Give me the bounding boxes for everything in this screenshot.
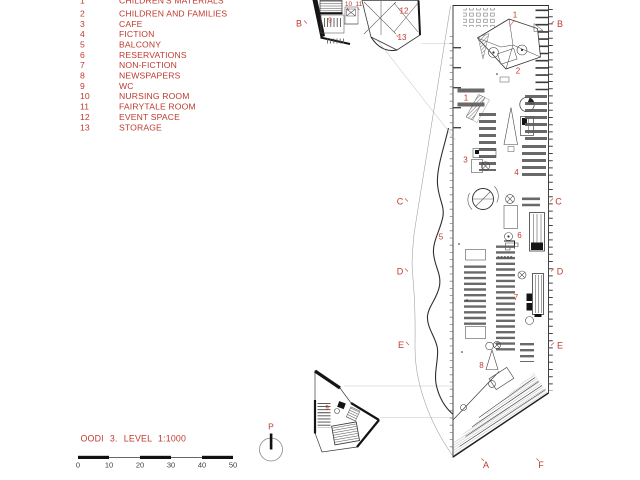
scale-tick-label: 40 (198, 461, 206, 470)
legend-label: CAFE (119, 19, 143, 29)
construction-line (378, 41, 456, 141)
title-block: OODI 3. LEVEL 1:1000 (81, 434, 187, 444)
legend-num: 9 (80, 81, 85, 91)
room-label-9b: 9 (325, 405, 329, 412)
section-marker-c-left: C (397, 197, 404, 207)
section-tick (405, 269, 408, 272)
legend-num: 2 (80, 8, 85, 18)
room-label-4: 4 (514, 168, 519, 177)
terrace-step (466, 386, 543, 437)
scale-bar-segment (140, 456, 171, 459)
legend-num: 7 (80, 60, 85, 70)
drawing-title: OODI 3. LEVEL 1:1000 (81, 434, 187, 444)
column-dot (461, 351, 463, 353)
scale-tick-label: 30 (167, 461, 175, 470)
elevator (527, 294, 533, 302)
section-marker-d-right: D (557, 267, 564, 277)
annex-plan-top (313, 0, 453, 50)
shaft (531, 243, 543, 251)
balcony-edge (412, 6, 452, 456)
round-table (489, 381, 496, 388)
annex-wall (357, 420, 379, 447)
floor-plan-sheet: 1 CHILDREN'S MATERIALS 2 CHILDREN AND FA… (0, 0, 640, 480)
section-marker-f-bottom: F (538, 460, 544, 470)
annex-plan-bottom (315, 371, 452, 452)
legend-num: 1 (80, 0, 85, 6)
legend-num: 8 (80, 71, 85, 81)
room-label-5: 5 (439, 233, 444, 242)
legend-label: FICTION (119, 29, 154, 39)
room-label-9: 9 (328, 18, 332, 25)
room-label-2: 2 (516, 67, 521, 76)
section-marker-e-right: E (557, 341, 563, 351)
scale-tick-label: 0 (76, 461, 80, 470)
scale-bar-segment (202, 456, 233, 459)
cone-skylight (504, 108, 518, 145)
reading-table (466, 327, 486, 339)
section-tick (550, 199, 553, 202)
escalator (332, 422, 360, 445)
section-marker-a-bottom: A (483, 460, 489, 470)
room-label-13: 13 (398, 33, 407, 42)
round-table-cross (507, 196, 513, 202)
table-grid (463, 8, 496, 27)
cone-skylight (486, 350, 498, 370)
furniture (500, 77, 509, 82)
legend-label: NURSING ROOM (119, 91, 190, 101)
annex-wall (315, 371, 340, 388)
legend-label: NON-FICTION (119, 60, 177, 70)
stair (346, 407, 360, 421)
legend-label: CHILDREN'S MATERIALS (119, 0, 224, 6)
section-marker-b-right: B (557, 19, 563, 29)
seating-area (504, 206, 518, 229)
elevator (347, 9, 356, 16)
column-dot (496, 73, 498, 75)
shaft (475, 150, 479, 154)
legend-label: NEWSPAPERS (119, 71, 181, 81)
legend-num: 13 (80, 122, 90, 132)
shaft (337, 401, 346, 409)
roof-bracing (364, 1, 418, 35)
room-label-7: 7 (514, 293, 519, 302)
section-tick (405, 199, 408, 202)
legend-label: BALCONY (119, 40, 161, 50)
legend-label: RESERVATIONS (119, 50, 187, 60)
room-label-1b: 1 (464, 94, 469, 103)
section-tick (304, 21, 307, 24)
north-needle (270, 434, 273, 450)
legend-num: 6 (80, 50, 85, 60)
legend-label: CHILDREN AND FAMILIES (119, 8, 227, 18)
room-label-8: 8 (479, 361, 484, 370)
escalator (466, 95, 485, 121)
annex-wall (321, 38, 351, 45)
scale-tick-label: 10 (105, 461, 113, 470)
glass-facade-line (427, 128, 452, 414)
core-walls (536, 275, 542, 313)
service-core (533, 274, 544, 315)
legend-label: STORAGE (119, 122, 162, 132)
room-labels: 1 2 1 3 4 5 6 7 8 9 10 11 12 13 9 (325, 1, 522, 412)
elevator (527, 303, 533, 311)
section-marker-c-right: C (555, 197, 562, 207)
main-plan (378, 6, 551, 458)
round-table (461, 405, 467, 411)
column-dot (458, 243, 460, 245)
section-marker-b-left: B (296, 19, 302, 29)
kiosk-center (507, 235, 509, 237)
legend-num: 11 (80, 102, 89, 112)
legend-num: 10 (80, 91, 90, 101)
scale-bar-segment (78, 456, 109, 459)
scale-tick-label: 20 (136, 461, 144, 470)
north-label: P (268, 422, 274, 432)
news-desk (489, 367, 514, 389)
legend-label: WC (119, 81, 134, 91)
reading-table (466, 250, 486, 261)
room-label-3: 3 (463, 156, 468, 165)
room-label-10: 10 (345, 1, 353, 8)
section-marker-d-left: D (397, 267, 404, 277)
spiral-stair-small (526, 317, 534, 325)
room-label-1: 1 (513, 11, 518, 20)
legend-label: FAIRYTALE ROOM (119, 102, 196, 112)
annex-wall (320, 13, 343, 15)
section-tick (551, 343, 554, 346)
event-space-room (362, 1, 420, 51)
legend-num: 4 (80, 29, 85, 39)
room-label-12: 12 (400, 7, 409, 16)
column (335, 409, 340, 414)
round-table (486, 342, 494, 350)
section-tick (406, 342, 409, 345)
north-arrow: P (260, 422, 283, 462)
stair (320, 1, 342, 13)
scale-bar: 0 10 20 30 40 50 (76, 456, 237, 470)
floor-plan-drawing: 1 CHILDREN'S MATERIALS 2 CHILDREN AND FA… (0, 0, 640, 480)
column-dot (466, 299, 468, 301)
terrace-step (460, 390, 546, 447)
terrace-seating (454, 373, 548, 457)
legend-num: 3 (80, 19, 85, 29)
annex-wall (419, 1, 421, 36)
round-seat-center (521, 49, 523, 51)
legend: 1 CHILDREN'S MATERIALS 2 CHILDREN AND FA… (80, 0, 227, 132)
round-table-cross (519, 272, 524, 277)
furniture (508, 147, 514, 152)
legend-num: 12 (80, 112, 90, 122)
section-marker-e-left: E (398, 340, 404, 350)
legend-label: EVENT SPACE (119, 112, 180, 122)
room-label-11: 11 (356, 1, 363, 8)
legend-num: 5 (80, 40, 85, 50)
round-seat-center (492, 51, 494, 53)
room-label-6: 6 (517, 231, 522, 240)
scale-tick-label: 50 (229, 461, 237, 470)
